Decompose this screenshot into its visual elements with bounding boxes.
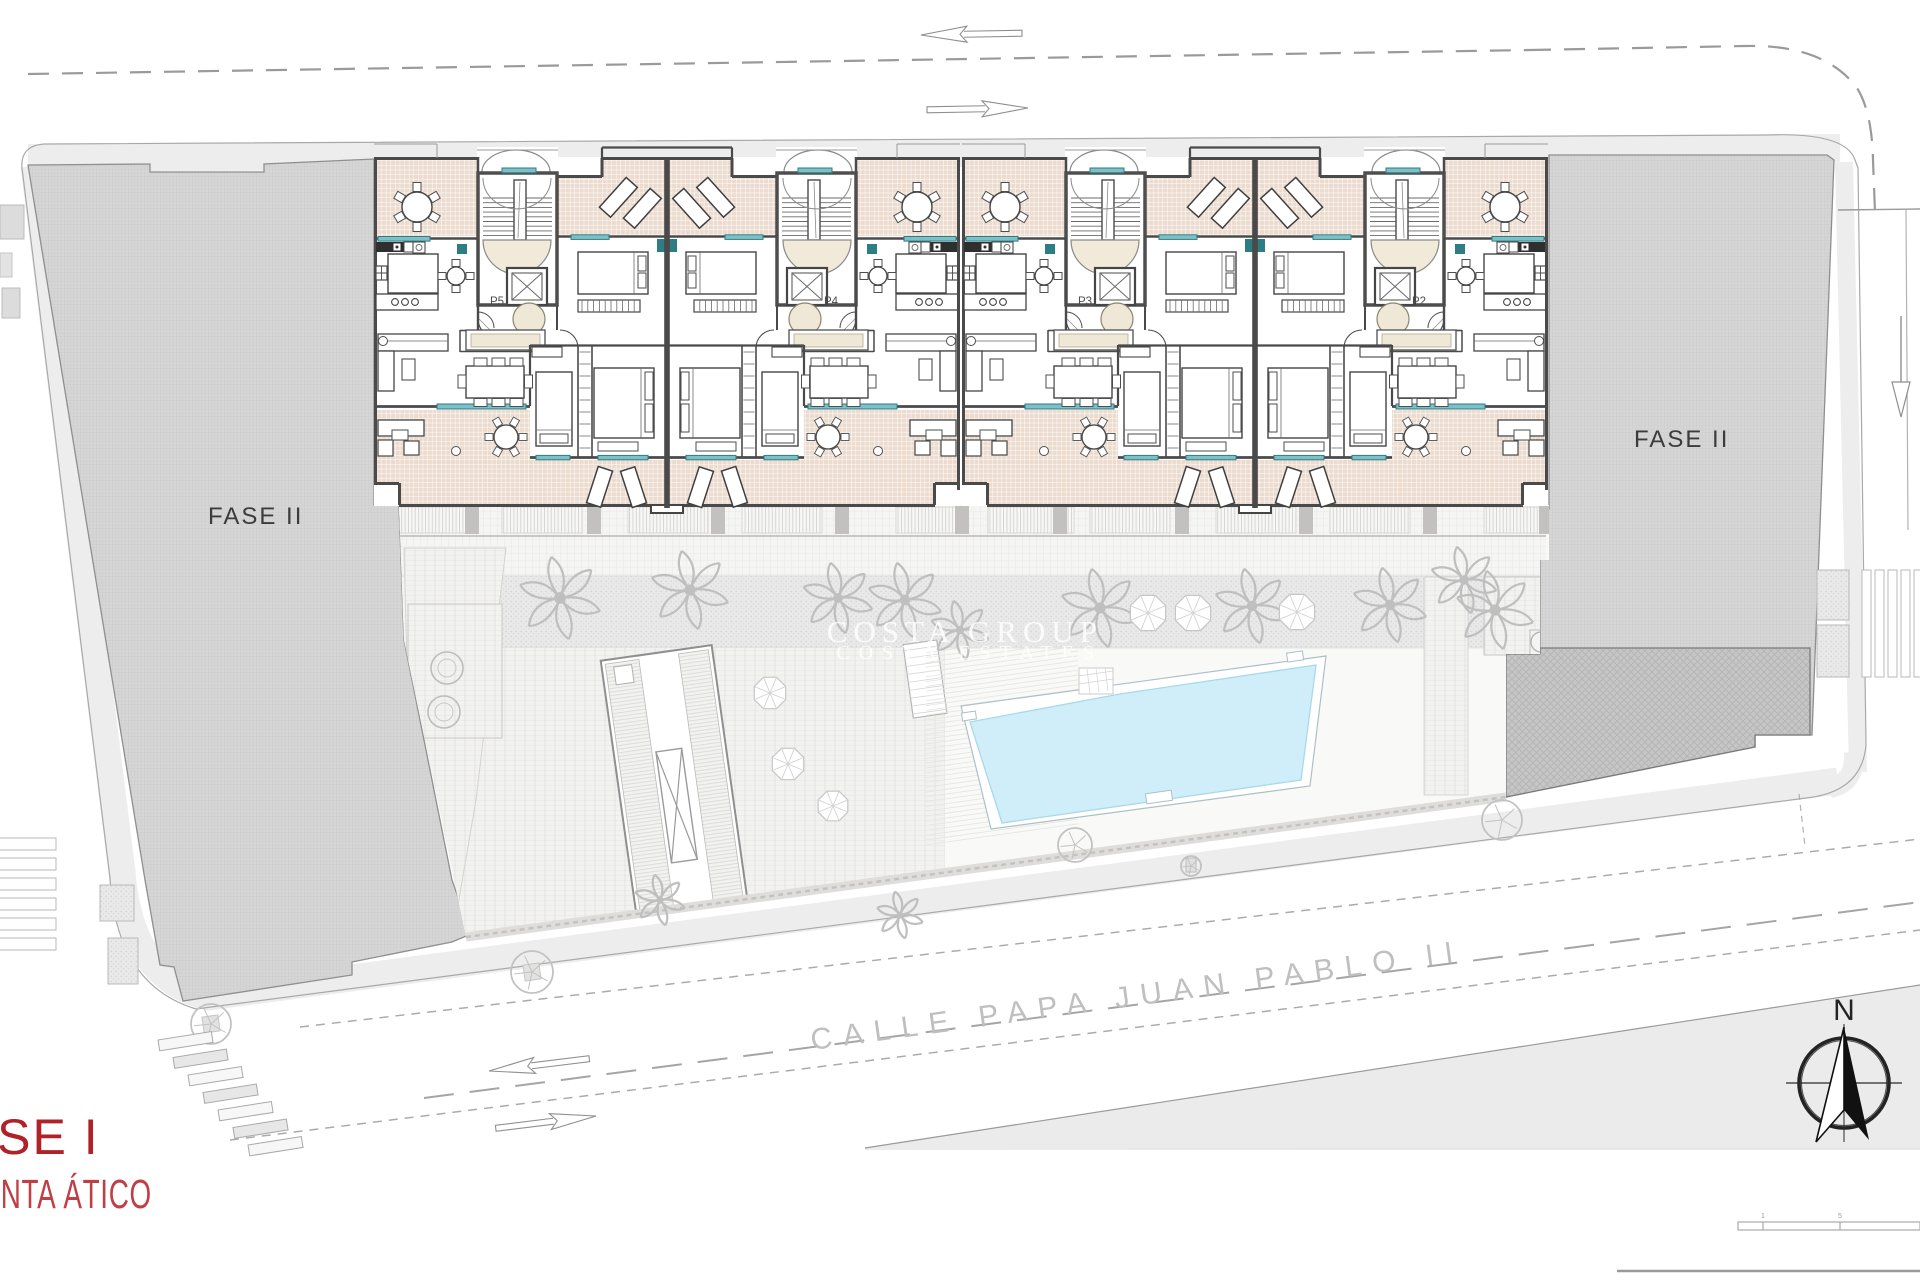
svg-text:P2: P2 [1412,296,1426,308]
svg-text:5: 5 [1838,1213,1842,1220]
svg-text:P3: P3 [1078,296,1092,308]
svg-text:FASE II: FASE II [208,503,303,530]
svg-text:N: N [1833,994,1855,1027]
svg-text:P4: P4 [824,296,839,308]
svg-text:1: 1 [1761,1213,1765,1220]
svg-text:P5: P5 [490,296,504,308]
svg-text:COSTA ESTATES: COSTA ESTATES [836,642,1103,664]
svg-text:PLANTA ÁTICO: PLANTA ÁTICO [0,1172,152,1218]
svg-text:FASE II: FASE II [1634,426,1729,453]
svg-text:FASE I: FASE I [0,1109,100,1165]
